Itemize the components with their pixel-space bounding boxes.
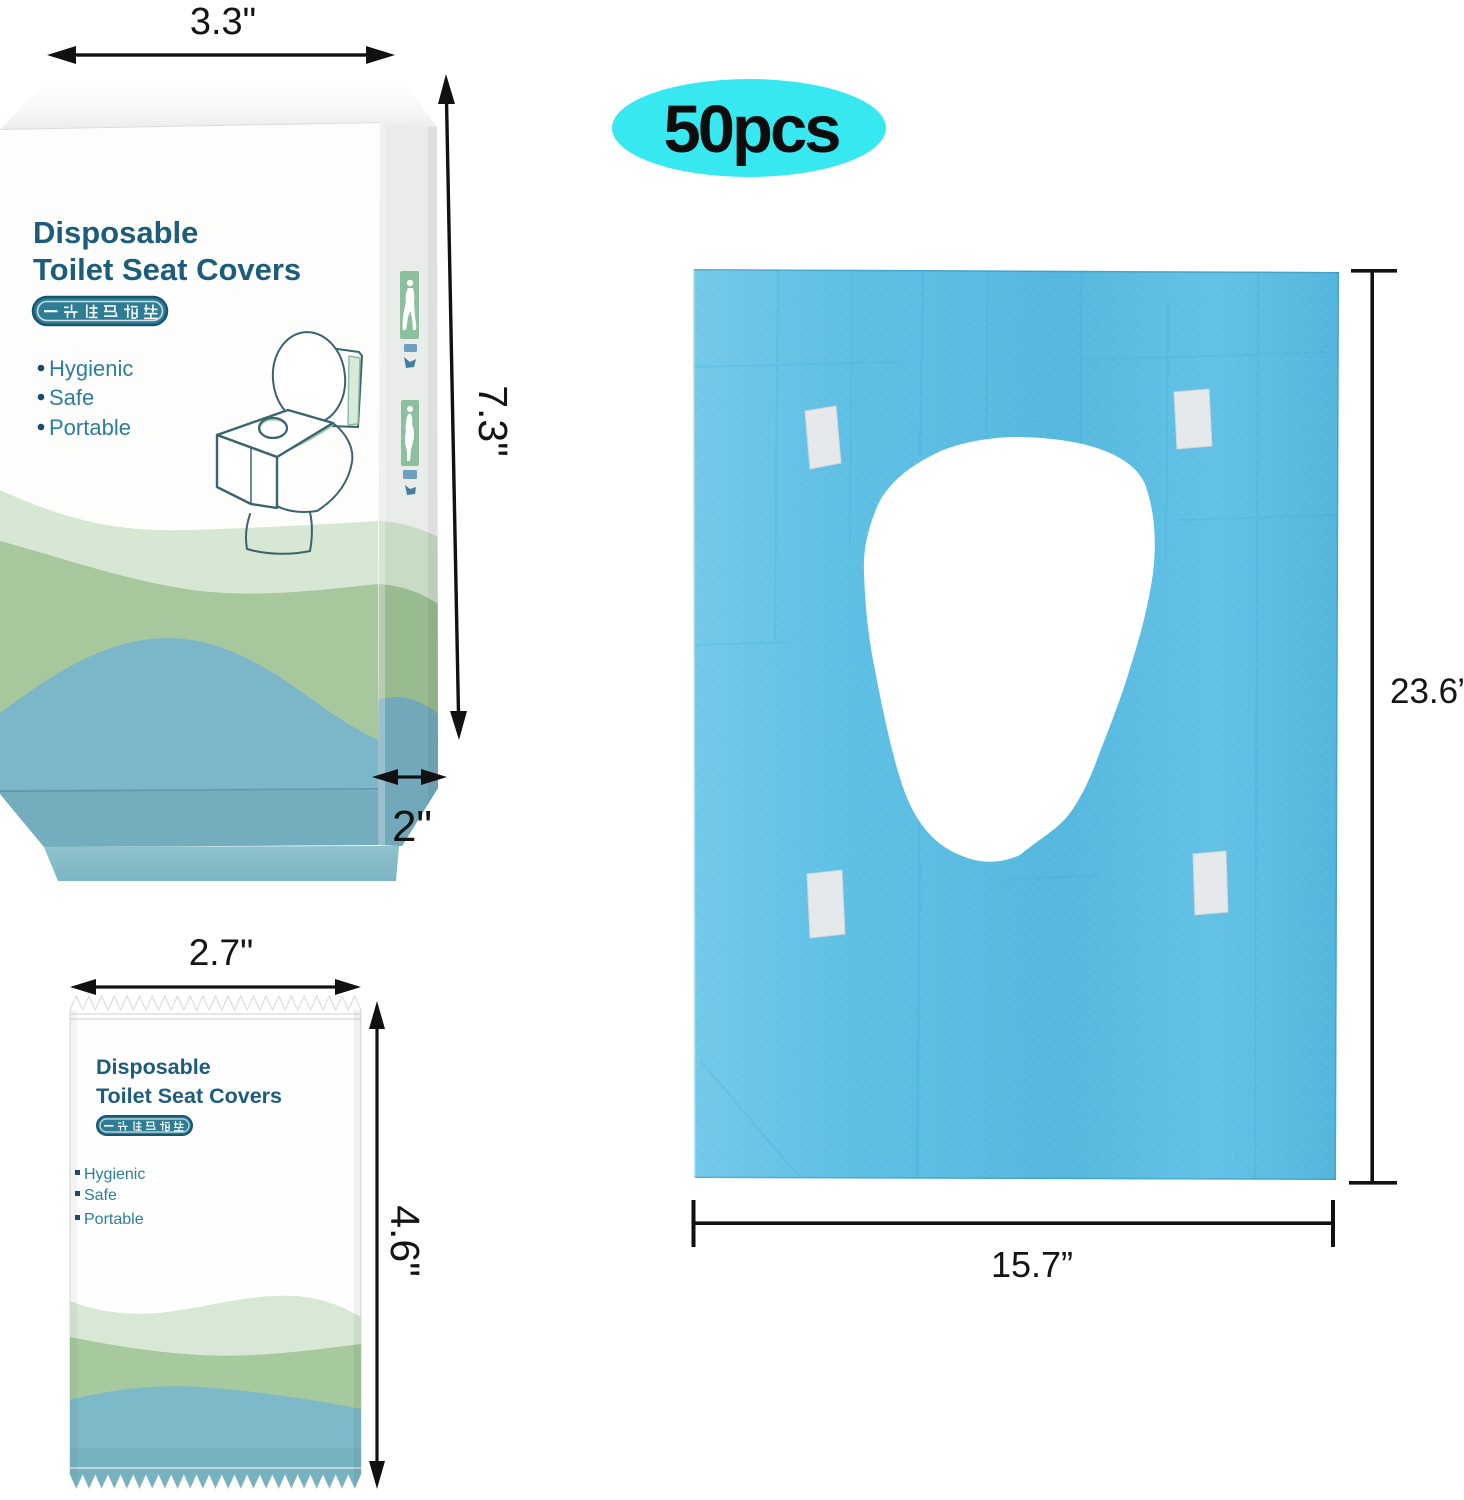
svg-text:3.3": 3.3" xyxy=(190,1,256,43)
svg-text:7.3": 7.3" xyxy=(470,385,516,457)
svg-text:2": 2" xyxy=(392,802,432,851)
svg-text:50pcs: 50pcs xyxy=(664,92,840,167)
svg-text:Disposable: Disposable xyxy=(33,215,198,250)
svg-text:Safe: Safe xyxy=(49,385,94,410)
svg-text:Toilet Seat Covers: Toilet Seat Covers xyxy=(33,252,301,287)
svg-text:23.6”: 23.6” xyxy=(1390,672,1464,711)
svg-text:Hygienic: Hygienic xyxy=(49,356,133,381)
svg-text:Safe: Safe xyxy=(84,1187,117,1204)
svg-text:Hygienic: Hygienic xyxy=(84,1166,145,1183)
svg-text:Portable: Portable xyxy=(49,415,131,440)
svg-text:15.7”: 15.7” xyxy=(991,1244,1073,1285)
svg-text:2.7": 2.7" xyxy=(189,932,254,973)
svg-text:4.6": 4.6" xyxy=(382,1205,428,1277)
svg-text:Toilet Seat Covers: Toilet Seat Covers xyxy=(96,1084,282,1108)
svg-text:Portable: Portable xyxy=(84,1211,144,1228)
svg-text:Disposable: Disposable xyxy=(96,1055,211,1079)
